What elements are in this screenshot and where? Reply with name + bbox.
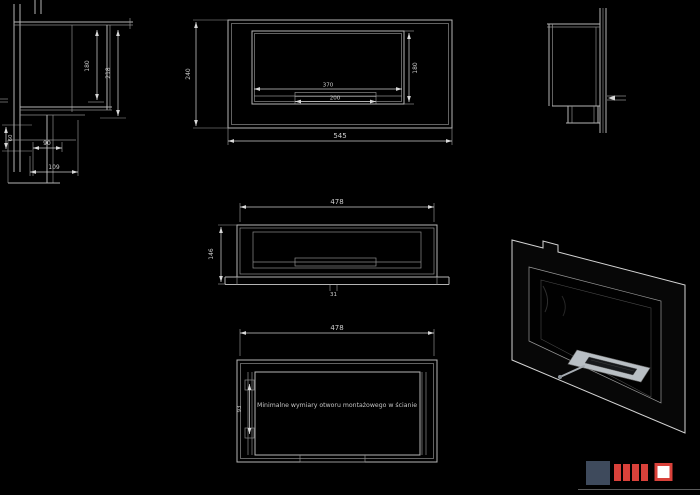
dim-front-width-opening: 370 (323, 83, 334, 89)
regulator-tool-tip (558, 375, 562, 379)
dim-front-width-overall: 545 (333, 132, 346, 140)
logo-glyph (632, 464, 639, 481)
dim-plan-width: 478 (330, 198, 343, 206)
dim-plan-lip: 31 (330, 292, 337, 298)
dim-side-height-inner: 180 (84, 60, 91, 72)
logo-glyph (623, 464, 630, 481)
dim-front-height-overall: 240 (185, 68, 192, 80)
dim-plan-depth: 146 (208, 248, 215, 260)
dim-side-offset: 60 (8, 134, 14, 141)
dim-side-depth-outer: 109 (48, 164, 60, 171)
dim-casing-bracket: 93 (237, 405, 243, 412)
logo-glyph (641, 464, 648, 481)
logo-box (656, 465, 671, 480)
casing-note: Minimalne wymiary otworu montażowego w ś… (257, 401, 417, 409)
dim-side-depth-inner: 90 (43, 140, 51, 147)
dim-front-width-burner: 200 (330, 96, 341, 102)
logo-mark (586, 461, 610, 485)
dim-casing-width: 478 (330, 324, 343, 332)
logo-glyph (614, 464, 621, 481)
dim-front-height-opening: 180 (412, 62, 419, 74)
dim-side-height-outer: 218 (105, 67, 112, 79)
technical-drawing: 180 218 60 90 109 240 180 370 (0, 0, 700, 495)
